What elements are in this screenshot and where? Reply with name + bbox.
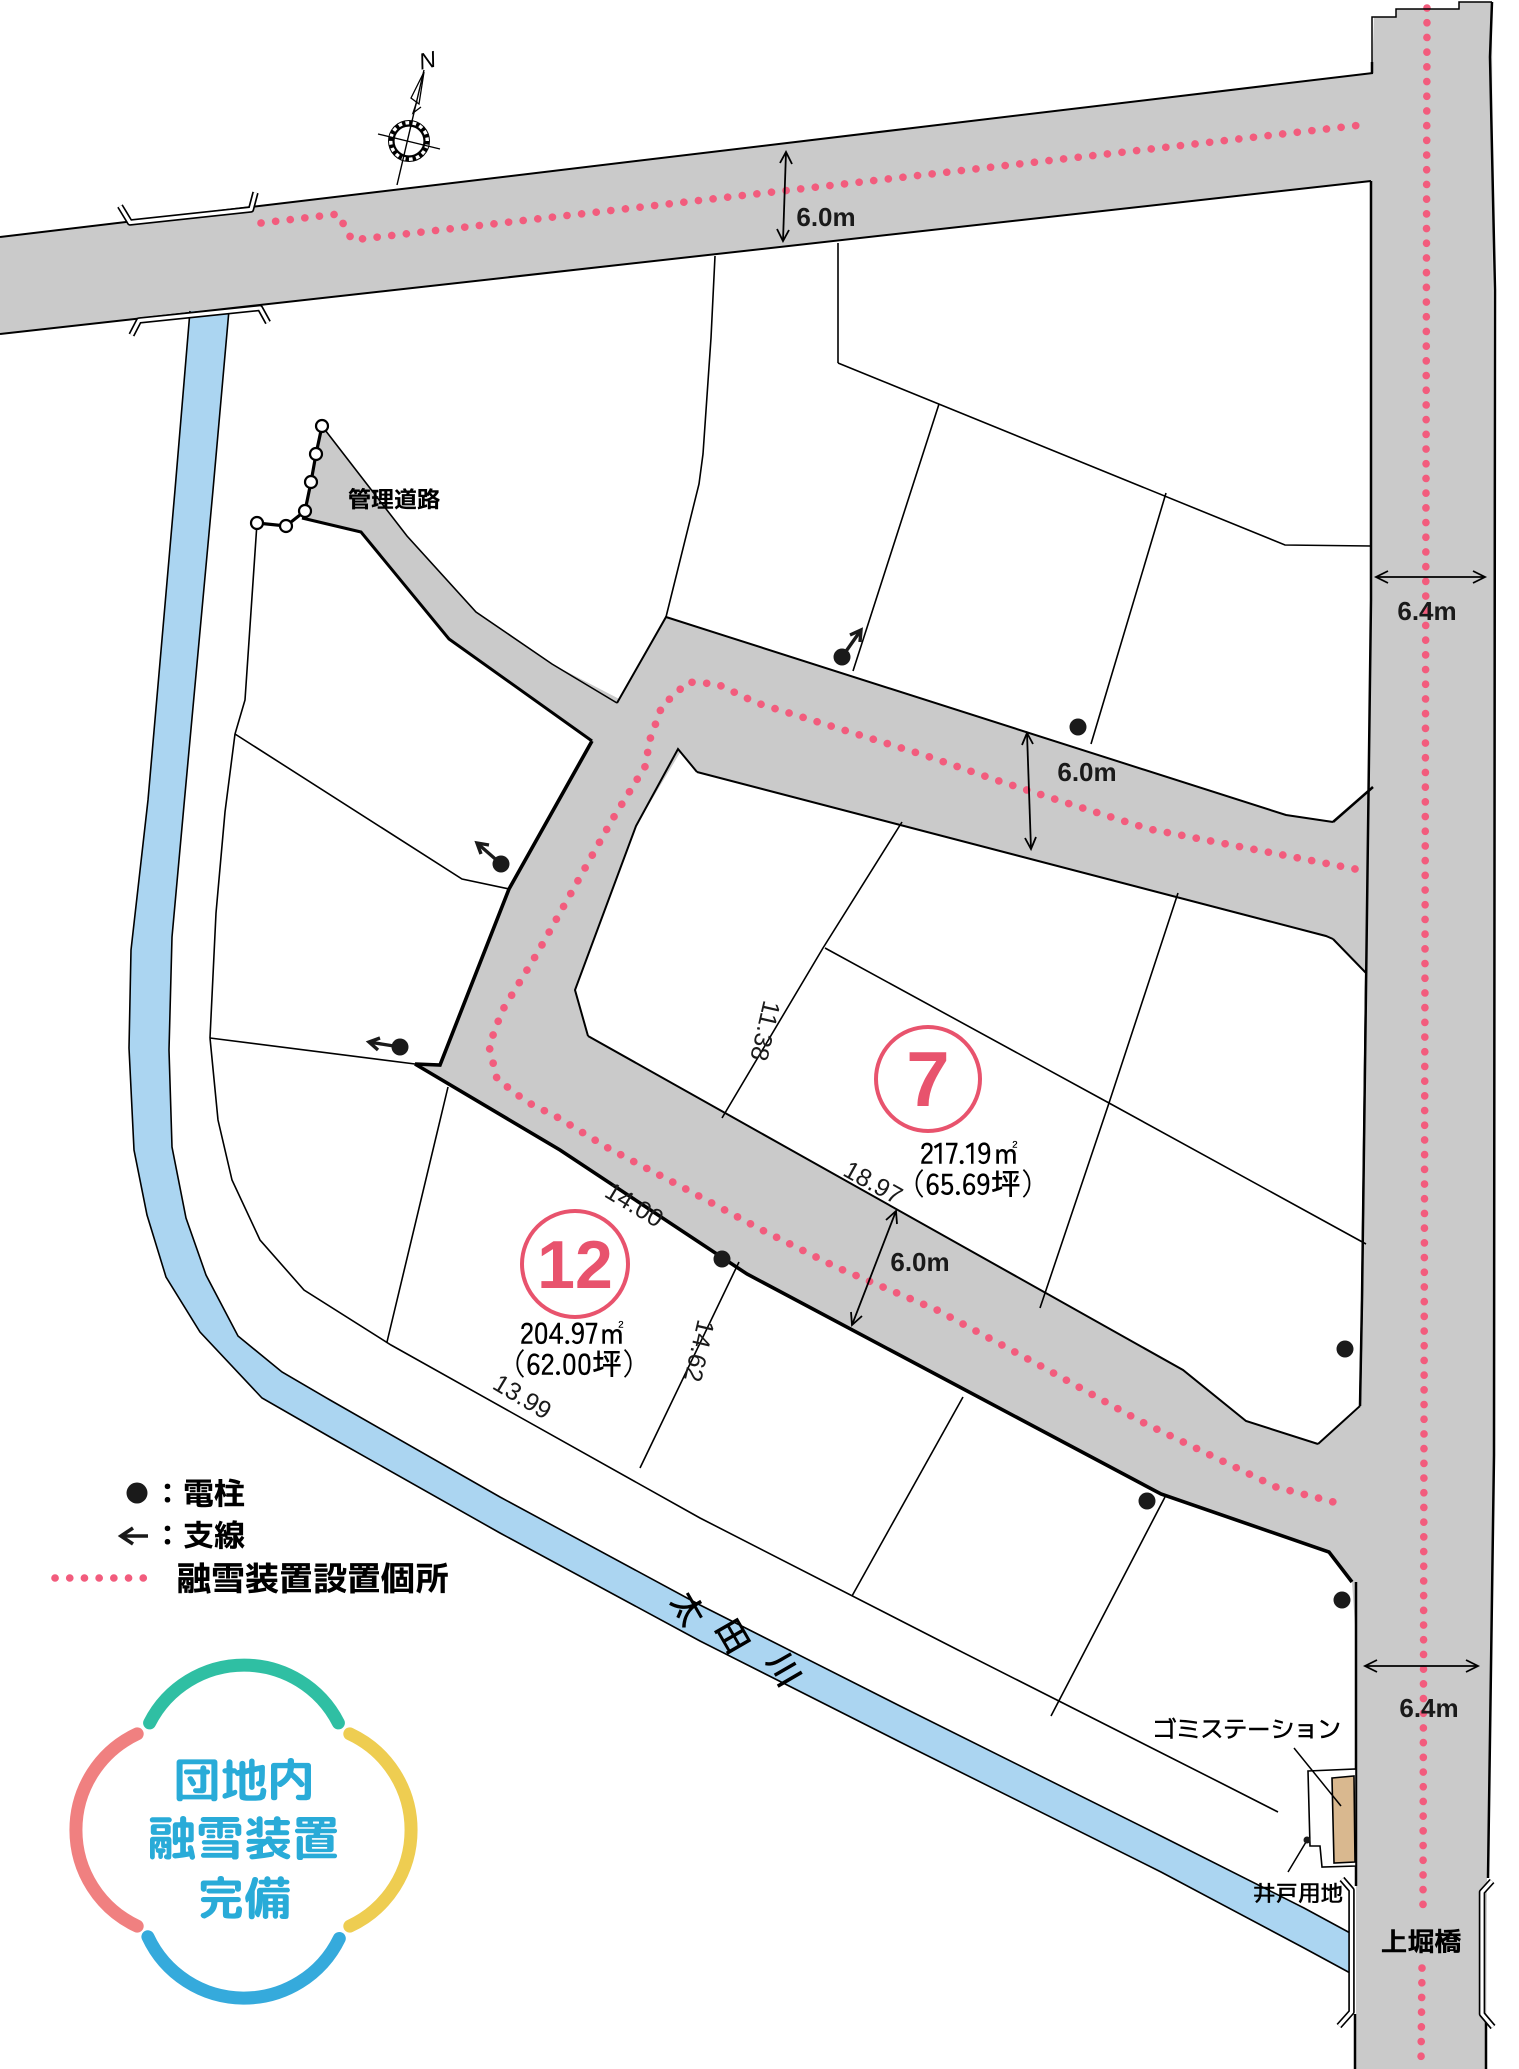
svg-text:6.0m: 6.0m bbox=[890, 1247, 949, 1277]
svg-text:12: 12 bbox=[537, 1227, 613, 1303]
svg-text:6.0m: 6.0m bbox=[1057, 757, 1116, 787]
svg-text:6.0m: 6.0m bbox=[796, 202, 855, 232]
svg-text:7: 7 bbox=[906, 1035, 949, 1123]
svg-text:6.4m: 6.4m bbox=[1397, 596, 1456, 626]
svg-text:6.4m: 6.4m bbox=[1399, 1693, 1458, 1723]
